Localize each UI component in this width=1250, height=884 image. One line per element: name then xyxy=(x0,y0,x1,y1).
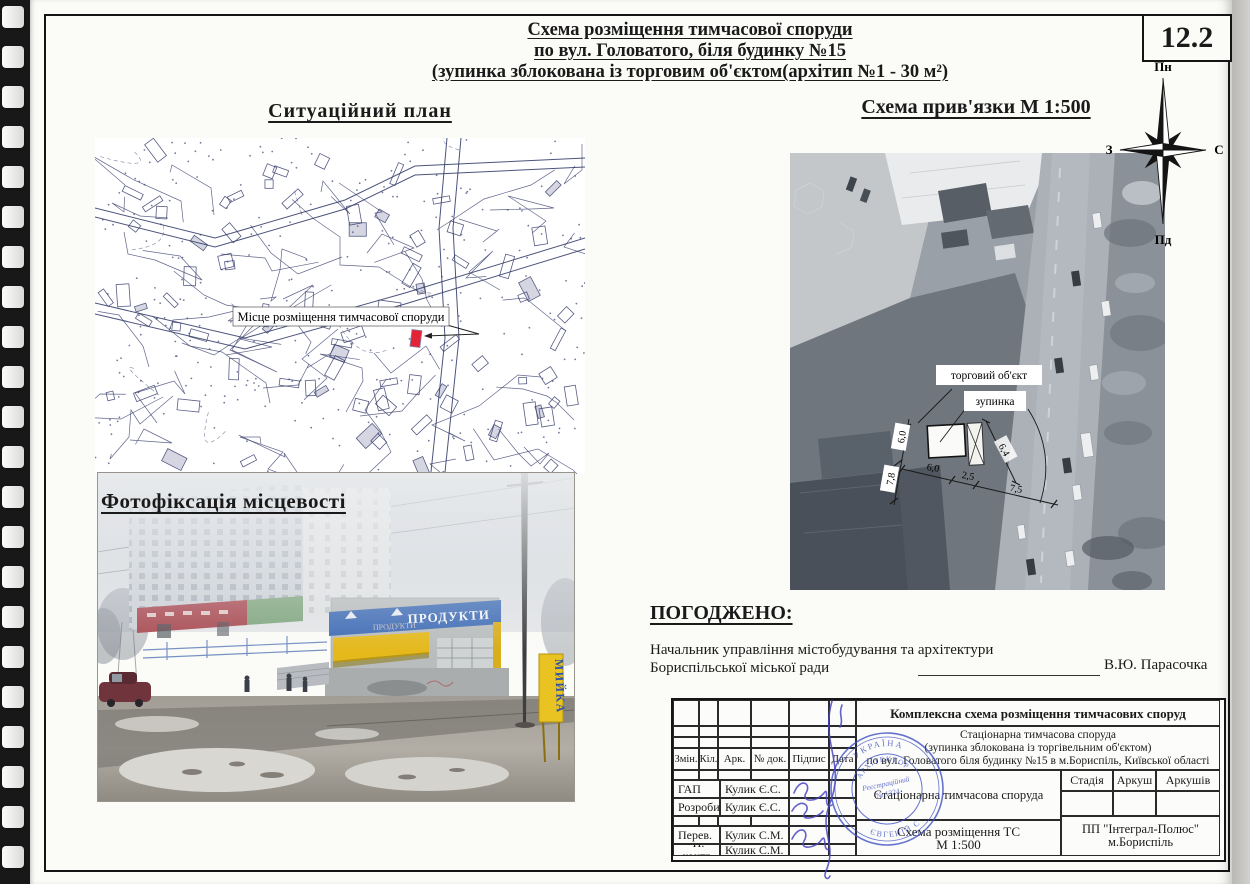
empty-cell xyxy=(718,726,751,737)
bus-stop-label: зупинка xyxy=(975,396,1014,408)
situational-plan-heading: Ситуаційний план xyxy=(245,100,475,123)
document-title: Схема розміщення тимчасової споруди по в… xyxy=(355,20,1025,83)
empty-cell xyxy=(673,816,699,826)
photo-heading: Фотофіксація місцевості xyxy=(101,489,346,514)
approved-heading: ПОГОДЖЕНО: xyxy=(650,602,793,625)
temporary-structure-outline xyxy=(927,424,966,458)
binding-tooth xyxy=(2,446,24,468)
approver-name: В.Ю. Парасочка xyxy=(1104,657,1207,674)
empty-cell xyxy=(673,700,699,726)
compass-south-label: Пд xyxy=(1155,232,1172,247)
binding-tooth xyxy=(2,126,24,148)
title-line-2: по вул. Головатого, біля будинку №15 xyxy=(355,41,1025,62)
car-wheel xyxy=(107,699,115,707)
spiral-binding xyxy=(0,0,30,884)
sheets-value-cell xyxy=(1156,791,1220,816)
binding-tooth xyxy=(2,646,24,668)
binding-tooth xyxy=(2,566,24,588)
name-perev: Кулик С.М. xyxy=(720,826,789,844)
binding-tooth xyxy=(2,86,24,108)
compass-west-label: З xyxy=(1106,142,1113,157)
binding-tooth xyxy=(2,406,24,428)
company-city: м.Бориспіль xyxy=(1108,836,1173,849)
car xyxy=(99,682,151,702)
binding-tooth xyxy=(2,766,24,788)
empty-cell xyxy=(699,816,718,826)
trade-object-label: торговий об'єкт xyxy=(951,370,1027,382)
signature-line xyxy=(918,659,1100,676)
empty-cell xyxy=(718,737,751,748)
compass-east-label: С xyxy=(1214,142,1223,157)
car-wash-sign-text: МИЙКА xyxy=(552,659,568,714)
empty-cell xyxy=(718,700,751,726)
car-window xyxy=(112,674,122,682)
binding-tooth xyxy=(2,606,24,628)
scanned-document-sheet: 12.2 Схема розміщення тимчасової споруди… xyxy=(0,0,1250,884)
snow-patch xyxy=(345,757,509,791)
role-nkontr: Н. контр. xyxy=(673,844,720,856)
sheets-col: Аркушів xyxy=(1156,770,1220,791)
role-rozrobyv: Розробив xyxy=(673,798,720,816)
empty-cell xyxy=(673,770,699,780)
stage-col: Стадія xyxy=(1061,770,1113,791)
dim-h2: 2,5 xyxy=(961,470,975,483)
empty-cell xyxy=(673,737,699,748)
object-line-1: Стаціонарна тимчасова споруда xyxy=(960,729,1116,742)
col-ark: Арк. xyxy=(718,748,751,770)
pole-shadow xyxy=(515,722,535,728)
empty-cell xyxy=(699,700,718,726)
page-number: 12.2 xyxy=(1161,21,1214,55)
binding-tooth xyxy=(2,526,24,548)
car-wheel xyxy=(135,699,143,707)
empty-cell xyxy=(699,726,718,737)
snow-patch xyxy=(315,728,379,740)
page-number-box: 12.2 xyxy=(1142,14,1232,62)
stage-value-cell xyxy=(1061,791,1113,816)
handwritten-signatures xyxy=(780,693,900,884)
empty-cell xyxy=(699,737,718,748)
col-kil: Кіл. xyxy=(699,748,718,770)
role-gap: ГАП xyxy=(673,780,720,798)
empty-cell xyxy=(673,726,699,737)
binding-tooth xyxy=(2,326,24,348)
binding-tooth xyxy=(2,366,24,388)
company-cell: ПП "Інтеграл-Полюс" м.Бориспіль xyxy=(1061,816,1220,856)
small-roof xyxy=(994,244,1016,261)
sheet-col: Аркуш xyxy=(1113,770,1156,791)
compass-north-label: Пн xyxy=(1154,59,1172,74)
binding-tooth xyxy=(2,6,24,28)
page-edge-shadow xyxy=(1232,0,1250,884)
name-rozrobyv: Кулик Є.С. xyxy=(720,798,789,816)
binding-tooth xyxy=(2,246,24,268)
dim-h1: 6,0 xyxy=(926,462,940,475)
snow-patch xyxy=(119,748,315,792)
name-gap: Кулик Є.С. xyxy=(720,780,789,798)
building-roof xyxy=(986,205,1034,239)
col-zmin: Змін. xyxy=(673,748,699,770)
object-line-2: (зупинка зблокована із торгівельним об'є… xyxy=(925,742,1152,755)
layout-scheme-heading: Схема прив'язки М 1:500 xyxy=(818,96,1134,119)
binding-tooth xyxy=(2,686,24,708)
binding-tooth xyxy=(2,806,24,828)
dim-h3: 7,5 xyxy=(1009,483,1023,496)
title-line-1: Схема розміщення тимчасової споруди xyxy=(355,20,1025,41)
binding-tooth xyxy=(2,286,24,308)
base-stain xyxy=(367,680,427,696)
empty-cell xyxy=(718,816,751,826)
empty-cell xyxy=(718,770,751,780)
binding-tooth xyxy=(2,46,24,68)
situational-plan-map: Місце розміщення тимчасової споруди xyxy=(95,138,585,474)
name-nkontr: Кулик С.М. xyxy=(720,844,789,856)
binding-tooth xyxy=(2,486,24,508)
binding-tooth xyxy=(2,206,24,228)
approver-line-1: Начальник управління містобудування та а… xyxy=(650,641,1120,659)
temporary-structure-marker xyxy=(410,329,422,347)
dim-v1: 6,0 xyxy=(896,430,909,444)
dim-v2: 7,8 xyxy=(885,472,898,486)
compass-rose-icon: Пн Пд З С xyxy=(1095,58,1231,250)
role-perev: Перев. xyxy=(673,826,720,844)
sheet-value-cell xyxy=(1113,791,1156,816)
site-photo: ПРОДУКТИ ПРОДУКТИ xyxy=(97,472,575,802)
building-block xyxy=(818,431,894,479)
empty-cell xyxy=(699,770,718,780)
binding-tooth xyxy=(2,166,24,188)
map-marker-label: Місце розміщення тимчасової споруди xyxy=(237,310,444,324)
title-line-3: (зупинка зблокована із торговим об'єктом… xyxy=(355,62,1025,83)
snow-patch xyxy=(115,716,199,732)
binding-tooth xyxy=(2,726,24,748)
binding-tooth xyxy=(2,846,24,868)
